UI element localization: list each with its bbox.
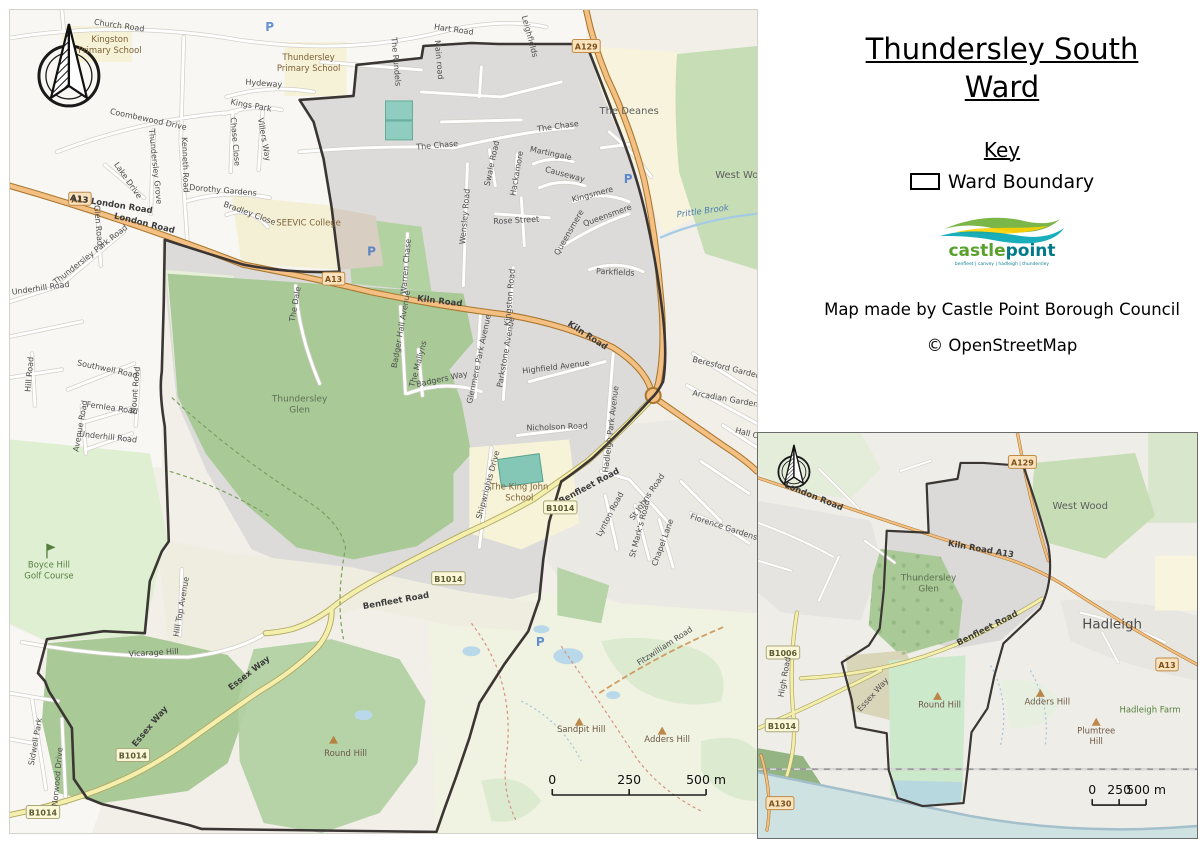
svg-text:A13: A13 <box>325 275 342 284</box>
svg-text:ThundersleyPrimary School: ThundersleyPrimary School <box>277 52 341 73</box>
title-line-2: Ward <box>965 70 1039 104</box>
main-map: Church RoadKingstonPrimary SchoolThunder… <box>9 9 758 834</box>
svg-text:West Wood: West Wood <box>715 170 757 181</box>
svg-text:B1014: B1014 <box>434 575 463 584</box>
svg-text:West Wood: West Wood <box>1053 501 1108 512</box>
svg-text:B1014: B1014 <box>119 752 148 761</box>
svg-text:Adders Hill: Adders Hill <box>644 734 690 744</box>
legend-ward-boundary: Ward Boundary <box>812 171 1192 193</box>
svg-text:A129: A129 <box>575 42 598 51</box>
svg-text:A130: A130 <box>769 800 792 809</box>
svg-text:Round Hill: Round Hill <box>918 699 961 709</box>
svg-text:0: 0 <box>548 772 556 787</box>
svg-text:Hadleigh: Hadleigh <box>1082 618 1142 633</box>
ward-boundary-symbol <box>910 173 940 190</box>
svg-text:250: 250 <box>617 772 641 787</box>
svg-text:A13: A13 <box>1158 661 1175 670</box>
main-map-areas <box>10 10 757 833</box>
svg-text:P: P <box>536 635 545 649</box>
page-title: Thundersley South Ward <box>812 30 1192 107</box>
svg-text:A129: A129 <box>1011 458 1034 467</box>
castlepoint-logo-svg: castlepoint benfleet | canvey | hadleigh… <box>926 213 1078 269</box>
svg-text:The Deanes: The Deanes <box>599 106 659 117</box>
svg-text:B1014: B1014 <box>768 722 797 731</box>
osm-credit: © OpenStreetMap <box>812 336 1192 355</box>
side-panel: Thundersley South Ward Key Ward Boundary… <box>812 30 1192 355</box>
castlepoint-logo: castlepoint benfleet | canvey | hadleigh… <box>812 213 1192 273</box>
inset-map-svg: A129London RoadWest WoodKiln Road A13Thu… <box>758 433 1197 838</box>
credit-line: Map made by Castle Point Borough Council <box>812 300 1192 319</box>
svg-text:Boyce HillGolf Course: Boyce HillGolf Course <box>24 559 73 580</box>
svg-text:B1014: B1014 <box>546 504 575 513</box>
inset-overview-map: A129London RoadWest WoodKiln Road A13Thu… <box>757 432 1198 839</box>
svg-text:Round Hill: Round Hill <box>324 748 367 758</box>
main-map-svg: Church RoadKingstonPrimary SchoolThunder… <box>10 10 757 833</box>
svg-text:P: P <box>367 245 376 259</box>
svg-text:500 m: 500 m <box>1126 782 1166 797</box>
svg-text:Hadleigh Farm: Hadleigh Farm <box>1119 704 1180 714</box>
legend-label: Ward Boundary <box>948 171 1094 193</box>
svg-text:P: P <box>265 20 274 34</box>
key-heading: Key <box>812 138 1192 162</box>
svg-text:500 m: 500 m <box>686 772 726 787</box>
svg-text:0: 0 <box>1088 782 1096 797</box>
svg-text:SEEVIC College: SEEVIC College <box>276 218 341 228</box>
logo-wordmark: castlepoint <box>948 241 1055 261</box>
svg-text:B1014: B1014 <box>29 808 58 817</box>
logo-tagline: benfleet | canvey | hadleigh | thundersl… <box>955 261 1050 267</box>
title-line-1: Thundersley South <box>866 32 1139 66</box>
svg-text:Adders Hill: Adders Hill <box>1025 696 1071 706</box>
svg-text:P: P <box>624 172 633 186</box>
